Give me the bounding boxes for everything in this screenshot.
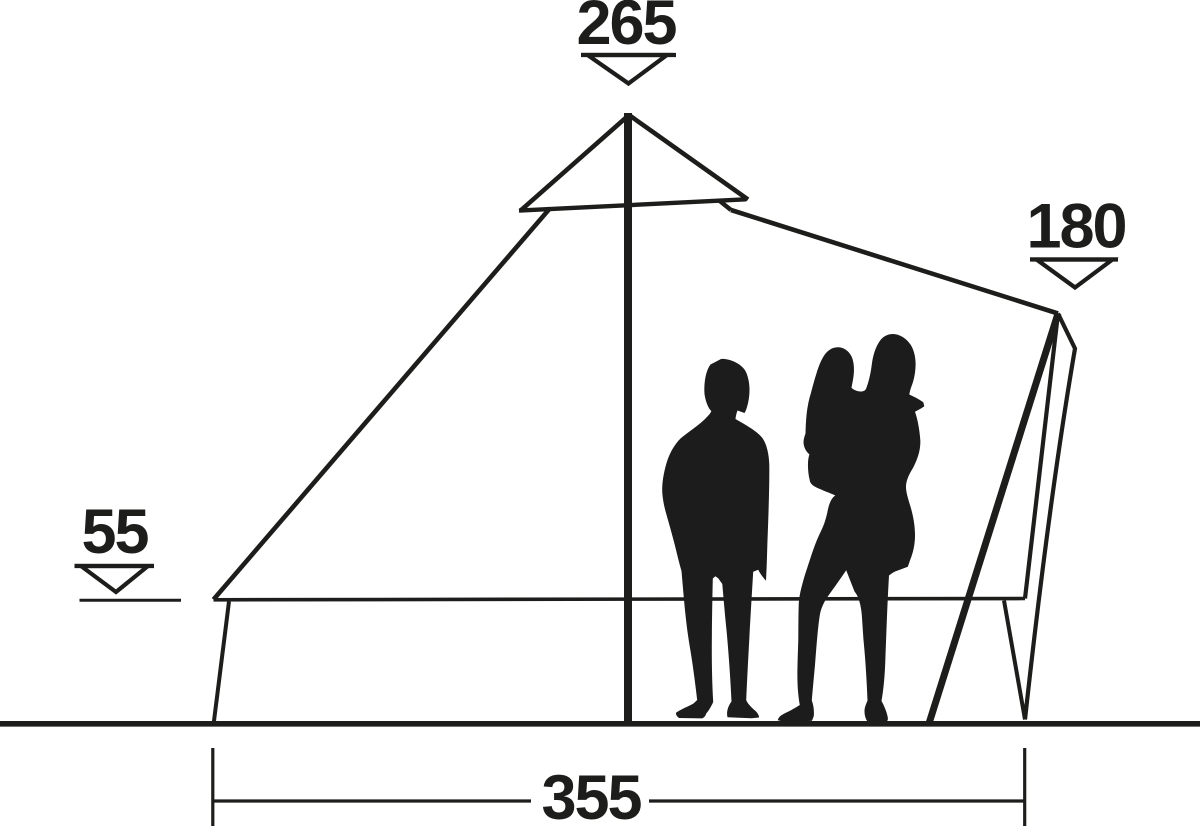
svg-text:180: 180 bbox=[1026, 192, 1125, 262]
svg-text:55: 55 bbox=[81, 497, 148, 567]
svg-text:355: 355 bbox=[541, 763, 641, 829]
svg-text:265: 265 bbox=[576, 0, 676, 58]
